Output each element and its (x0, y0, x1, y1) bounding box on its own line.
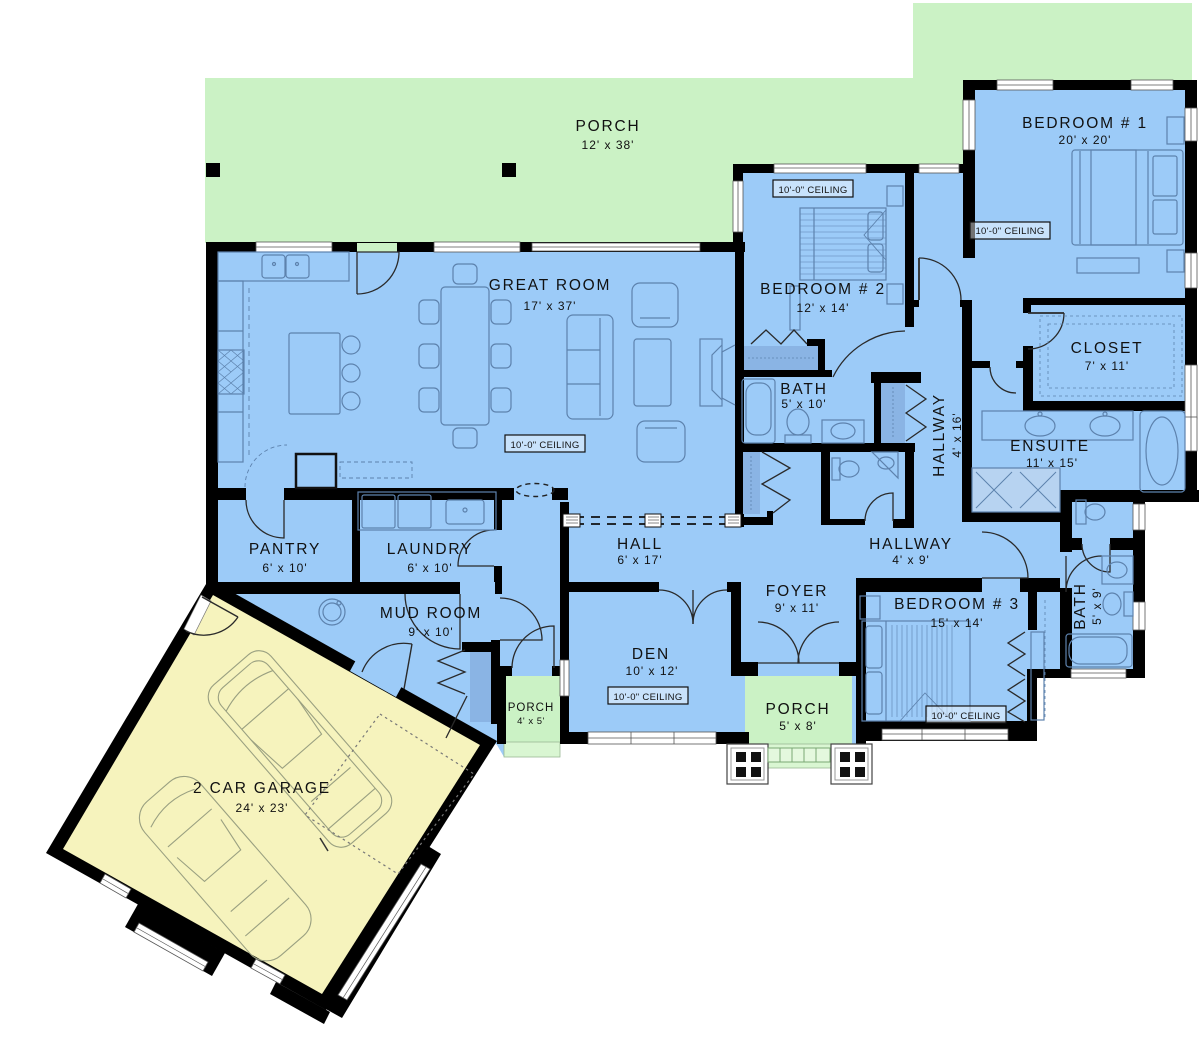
svg-text:2 CAR GARAGE: 2 CAR GARAGE (193, 780, 331, 797)
svg-text:4' x 9': 4' x 9' (892, 553, 930, 567)
svg-text:BATH: BATH (1072, 582, 1089, 629)
svg-text:10'-0" CEILING: 10'-0" CEILING (778, 185, 847, 196)
svg-text:10'-0" CEILING: 10'-0" CEILING (613, 692, 682, 703)
svg-text:BATH: BATH (780, 381, 827, 398)
svg-text:6' x 10': 6' x 10' (407, 561, 452, 575)
svg-text:DEN: DEN (632, 646, 670, 663)
svg-text:10'-0" CEILING: 10'-0" CEILING (510, 440, 579, 451)
svg-text:10'-0" CEILING: 10'-0" CEILING (975, 226, 1044, 237)
svg-text:7' x 11': 7' x 11' (1085, 359, 1129, 373)
svg-text:HALLWAY: HALLWAY (869, 536, 953, 553)
svg-text:BEDROOM # 1: BEDROOM # 1 (1022, 115, 1148, 132)
svg-text:4' x 16': 4' x 16' (950, 412, 964, 457)
svg-text:4' x 5': 4' x 5' (517, 716, 545, 727)
svg-text:PORCH: PORCH (766, 701, 831, 718)
svg-text:HALLWAY: HALLWAY (931, 393, 948, 477)
svg-text:10'-0" CEILING: 10'-0" CEILING (931, 711, 1000, 722)
svg-text:11' x 15': 11' x 15' (1026, 456, 1078, 470)
svg-text:PORCH: PORCH (576, 118, 641, 135)
svg-text:15' x 14': 15' x 14' (931, 616, 984, 630)
svg-text:LAUNDRY: LAUNDRY (387, 541, 473, 558)
svg-text:9' x 10': 9' x 10' (408, 625, 453, 639)
svg-text:12' x 38': 12' x 38' (582, 138, 635, 152)
svg-text:CLOSET: CLOSET (1071, 340, 1144, 357)
svg-text:17' x 37': 17' x 37' (524, 299, 577, 313)
svg-text:5' x 9': 5' x 9' (1090, 587, 1104, 625)
svg-text:10' x 12': 10' x 12' (626, 664, 679, 678)
svg-text:9' x 11': 9' x 11' (775, 601, 819, 615)
svg-text:12' x 14': 12' x 14' (797, 301, 850, 315)
svg-text:6' x 10': 6' x 10' (262, 561, 307, 575)
svg-text:5' x 8': 5' x 8' (779, 719, 817, 733)
svg-text:MUD ROOM: MUD ROOM (380, 605, 482, 622)
svg-text:5' x 10': 5' x 10' (781, 397, 826, 411)
svg-text:PANTRY: PANTRY (249, 541, 321, 558)
svg-text:6' x 17': 6' x 17' (617, 553, 662, 567)
svg-text:PORCH: PORCH (508, 702, 555, 714)
svg-text:BEDROOM # 3: BEDROOM # 3 (894, 596, 1020, 613)
svg-text:20' x 20': 20' x 20' (1059, 133, 1112, 147)
svg-text:FOYER: FOYER (766, 583, 828, 600)
svg-text:GREAT ROOM: GREAT ROOM (489, 277, 612, 294)
svg-text:24' x 23': 24' x 23' (236, 801, 289, 815)
svg-text:HALL: HALL (617, 536, 663, 553)
svg-text:ENSUITE: ENSUITE (1010, 438, 1090, 455)
svg-text:BEDROOM # 2: BEDROOM # 2 (760, 281, 886, 298)
